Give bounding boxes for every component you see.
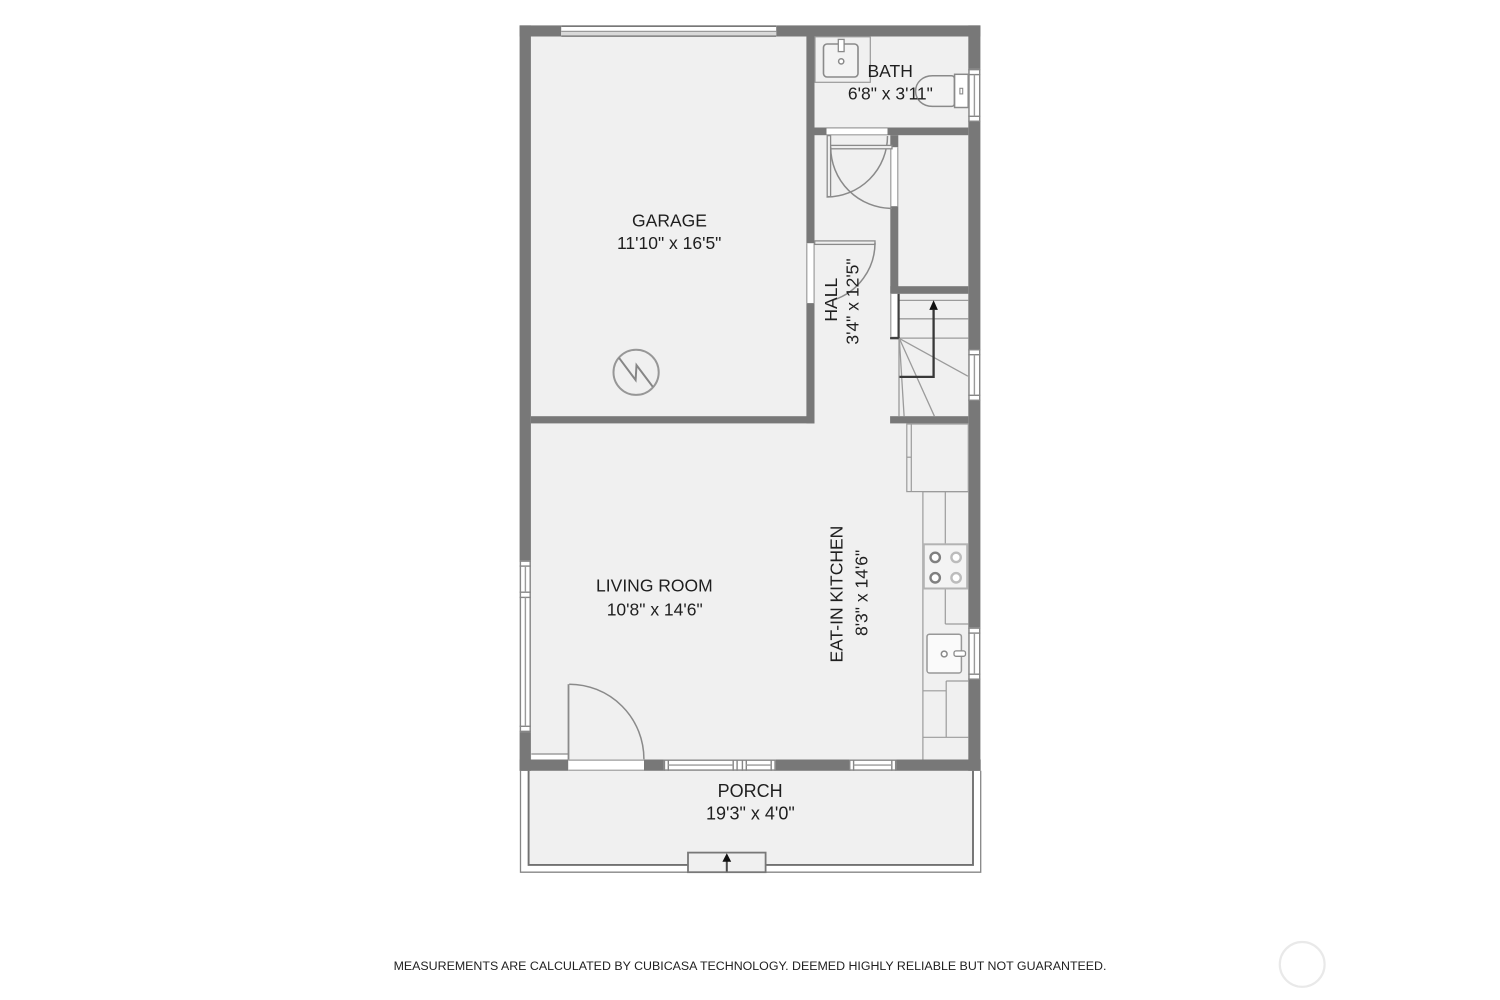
svg-text:BATH: BATH [868, 61, 913, 81]
svg-text:HALL: HALL [821, 278, 841, 322]
svg-text:19'3" x 4'0": 19'3" x 4'0" [706, 804, 795, 824]
svg-text:3'4" x 12'5": 3'4" x 12'5" [842, 258, 862, 344]
svg-text:PORCH: PORCH [718, 781, 783, 801]
svg-text:8'3" x 14'6": 8'3" x 14'6" [851, 550, 871, 636]
svg-text:MEASUREMENTS ARE CALCULATED BY: MEASUREMENTS ARE CALCULATED BY CUBICASA … [394, 959, 1107, 973]
svg-text:6'8" x 3'11": 6'8" x 3'11" [848, 84, 933, 104]
svg-text:LIVING ROOM: LIVING ROOM [596, 575, 713, 595]
svg-text:10'8" x 14'6": 10'8" x 14'6" [607, 599, 703, 619]
svg-text:EAT-IN KITCHEN: EAT-IN KITCHEN [827, 526, 847, 663]
svg-text:GARAGE: GARAGE [632, 210, 707, 230]
svg-text:11'10" x 16'5": 11'10" x 16'5" [617, 233, 721, 253]
